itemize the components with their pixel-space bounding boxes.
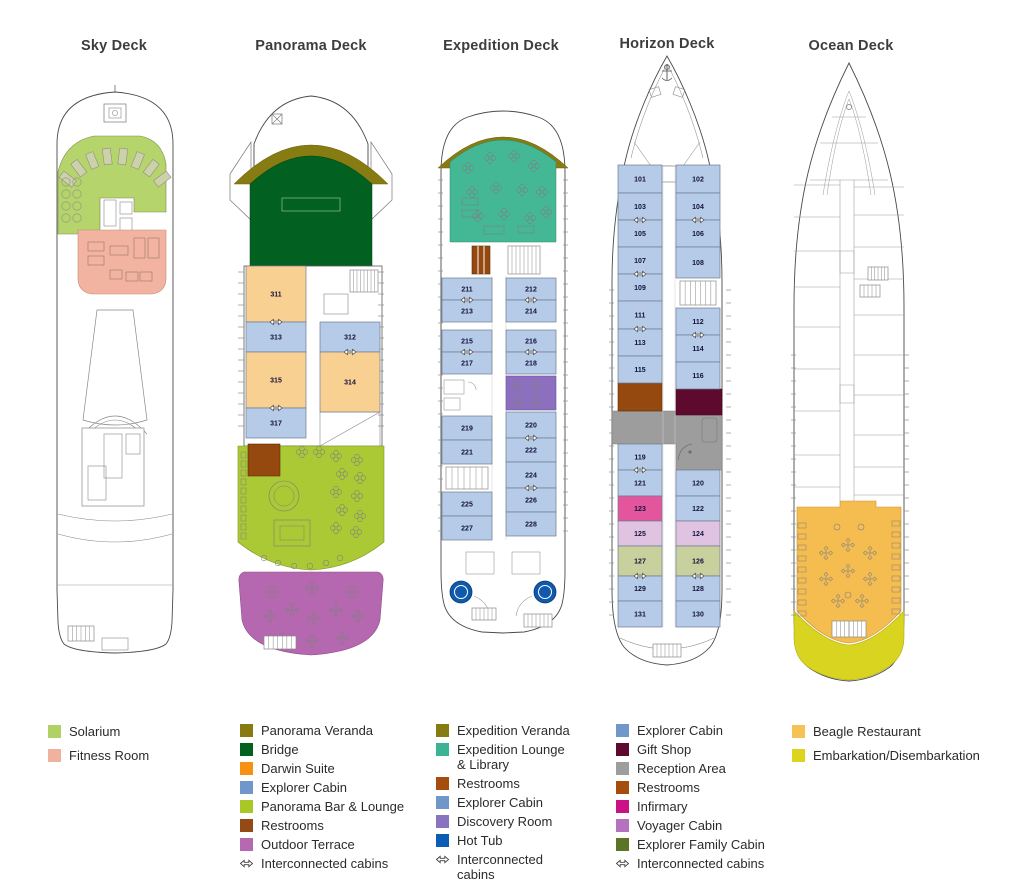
legend-panorama: Panorama VerandaBridgeDarwin SuiteExplor…	[240, 723, 404, 871]
deck-title-panorama: Panorama Deck	[255, 38, 366, 54]
legend-swatch	[240, 781, 253, 794]
cabin-number: 127	[634, 559, 646, 566]
legend-item: Interconnected cabins	[616, 856, 765, 871]
cabin-number: 122	[692, 506, 704, 513]
legend-swatch	[616, 743, 629, 756]
legend-swatch	[436, 743, 449, 756]
legend-swatch	[616, 838, 629, 851]
cabin-number: 113	[634, 340, 645, 347]
stairs-top	[508, 246, 540, 274]
legend-label: Beagle Restaurant	[813, 724, 921, 739]
legend-item: Embarkation/Disembarkation	[792, 748, 980, 763]
machinery	[104, 200, 116, 226]
legend-label: Expedition Veranda	[457, 723, 570, 738]
legend-item: Infirmary	[616, 799, 765, 814]
legend-label: Gift Shop	[637, 742, 691, 757]
cabin-number: 109	[634, 285, 646, 292]
legend-swatch	[240, 838, 253, 851]
legend-label: Discovery Room	[457, 814, 552, 829]
legend-item: Restrooms	[240, 818, 404, 833]
legend-swatch	[616, 724, 629, 737]
legend-swatch	[616, 819, 629, 832]
cabin-number: 111	[635, 313, 646, 320]
stern-platform	[102, 638, 128, 650]
cabin-number: 130	[692, 612, 704, 619]
cabin-number: 125	[634, 531, 646, 538]
legend-swatch	[616, 762, 629, 775]
cabin-number: 211	[461, 287, 472, 294]
legend-item: Beagle Restaurant	[792, 724, 980, 739]
cabin-number: 224	[525, 473, 537, 480]
legend-ocean: Beagle RestaurantEmbarkation/Disembarkat…	[792, 724, 980, 763]
stern-locker	[466, 552, 494, 574]
legend-label: Outdoor Terrace	[261, 837, 355, 852]
legend-label: Explorer Cabin	[637, 723, 723, 738]
legend-swatch	[240, 724, 253, 737]
legend-swatch	[436, 815, 449, 828]
legend-item: Fitness Room	[48, 748, 149, 763]
plan-detail	[102, 148, 112, 165]
panorama-deck-plan: 311313315317312314	[224, 80, 399, 675]
legend-item: Explorer Cabin	[436, 795, 575, 810]
cabin-number: 101	[634, 177, 646, 184]
legend-label: Restrooms	[261, 818, 324, 833]
legend-swatch	[616, 781, 629, 794]
cabin-number: 228	[525, 522, 537, 529]
stern-locker	[512, 552, 540, 574]
legend-label: Explorer Family Cabin	[637, 837, 765, 852]
legend-swatch	[792, 725, 805, 738]
hot-tub	[534, 581, 556, 603]
cabin-number: 104	[692, 204, 704, 211]
machinery	[120, 202, 132, 214]
legend-label: Interconnected cabins	[261, 856, 388, 871]
cabin-number: 108	[692, 260, 704, 267]
legend-label: Interconnected cabins	[637, 856, 764, 871]
plan-detail	[118, 148, 128, 165]
cabin-number: 219	[461, 426, 473, 433]
cabin-number: 313	[270, 335, 282, 342]
legend-item: Outdoor Terrace	[240, 837, 404, 852]
interconnect-arrows-icon	[616, 857, 629, 870]
hot-tub	[450, 581, 472, 603]
interconnect-arrows-icon	[436, 855, 449, 864]
legend-label: Expedition Lounge & Library	[457, 742, 575, 772]
legend-item: Explorer Family Cabin	[616, 837, 765, 852]
legend-swatch	[240, 743, 253, 756]
legend-item: Panorama Veranda	[240, 723, 404, 738]
legend-item: Interconnected cabins	[436, 852, 575, 882]
legend-label: Fitness Room	[69, 748, 149, 763]
legend-sky: SolariumFitness Room	[48, 724, 149, 763]
cabin-number: 105	[634, 231, 646, 238]
legend-label: Explorer Cabin	[457, 795, 543, 810]
gift-shop-area	[676, 389, 722, 415]
interconnect-arrows-icon	[240, 857, 253, 870]
lounger	[118, 148, 128, 165]
stair-post	[688, 450, 691, 453]
legend-swatch	[240, 800, 253, 813]
restrooms-area	[618, 383, 662, 411]
cabin-number: 124	[692, 531, 704, 538]
legend-item: Explorer Cabin	[240, 780, 404, 795]
legend-label: Restrooms	[637, 780, 700, 795]
cabin-number: 315	[270, 378, 282, 385]
legend-item: Reception Area	[616, 761, 765, 776]
legend-swatch	[48, 749, 61, 762]
cabin-number: 314	[344, 380, 356, 387]
legend-label: Restrooms	[457, 776, 520, 791]
expedition-lounge-area	[450, 140, 556, 242]
legend-swatch	[436, 724, 449, 737]
legend-label: Interconnected cabins	[457, 852, 575, 882]
legend-swatch	[48, 725, 61, 738]
legend-swatch	[436, 834, 449, 847]
legend-label: Solarium	[69, 724, 120, 739]
discovery-room-area	[506, 376, 556, 410]
cabin-number: 103	[634, 204, 646, 211]
legend-swatch	[436, 777, 449, 790]
cabin-number: 107	[634, 258, 646, 265]
legend-item: Gift Shop	[616, 742, 765, 757]
cabin-number: 114	[692, 346, 703, 353]
cabin-number: 222	[525, 448, 537, 455]
stairs	[680, 281, 716, 305]
lounger	[102, 148, 112, 165]
legend-label: Explorer Cabin	[261, 780, 347, 795]
legend-label: Embarkation/Disembarkation	[813, 748, 980, 763]
legend-label: Voyager Cabin	[637, 818, 722, 833]
cabin-number: 227	[461, 526, 473, 533]
cabin-number: 212	[525, 287, 537, 294]
legend-item: Expedition Lounge & Library	[436, 742, 575, 772]
cabin-number: 115	[634, 367, 645, 374]
legend-swatch	[240, 762, 253, 775]
cabin-number: 102	[692, 177, 704, 184]
legend-label: Panorama Veranda	[261, 723, 373, 738]
legend-label: Panorama Bar & Lounge	[261, 799, 404, 814]
cabin-number: 126	[692, 559, 704, 566]
legend-expedition: Expedition VerandaExpedition Lounge & Li…	[436, 723, 575, 882]
legend-item: Darwin Suite	[240, 761, 404, 776]
legend-swatch	[436, 796, 449, 809]
cabin-number: 121	[634, 481, 646, 488]
legend-horizon: Explorer CabinGift ShopReception AreaRes…	[616, 723, 765, 871]
restrooms-area	[472, 246, 490, 274]
deckhouse	[82, 428, 144, 506]
legend-label: Hot Tub	[457, 833, 503, 848]
cabin-number: 317	[270, 421, 282, 428]
legend-item: Restrooms	[436, 776, 575, 791]
cabin-number: 216	[525, 339, 537, 346]
interconnect-arrows-icon	[436, 853, 449, 866]
legend-item: Expedition Veranda	[436, 723, 575, 738]
deck-title-sky: Sky Deck	[81, 38, 147, 54]
horizon-deck-plan: 1011031051071091111131151191211231251271…	[600, 50, 740, 690]
legend-label: Darwin Suite	[261, 761, 335, 776]
legend-item: Explorer Cabin	[616, 723, 765, 738]
cabin-number: 220	[525, 423, 537, 430]
fitness-room-area	[78, 230, 166, 294]
cabin-number: 120	[692, 481, 704, 488]
cabin-number: 225	[461, 502, 473, 509]
deck-title-expedition: Expedition Deck	[443, 38, 559, 54]
cabin-number: 312	[344, 335, 356, 342]
legend-item: Solarium	[48, 724, 149, 739]
legend-label: Reception Area	[637, 761, 726, 776]
legend-swatch	[616, 800, 629, 813]
legend-item: Discovery Room	[436, 814, 575, 829]
cabin-number: 116	[692, 373, 703, 380]
interconnect-arrows-icon	[616, 859, 629, 868]
legend-label: Bridge	[261, 742, 299, 757]
stairs	[446, 467, 488, 489]
cabin-number: 214	[525, 309, 537, 316]
legend-swatch	[792, 749, 805, 762]
cabin-number: 112	[692, 319, 703, 326]
legend-item: Interconnected cabins	[240, 856, 404, 871]
mast-house	[104, 104, 126, 122]
interconnect-arrows-icon	[240, 859, 253, 868]
legend-item: Bridge	[240, 742, 404, 757]
stairs	[860, 285, 880, 297]
cabin-number: 218	[525, 361, 537, 368]
deck-title-ocean: Ocean Deck	[808, 38, 893, 54]
legend-swatch	[240, 819, 253, 832]
cabin-number: 131	[634, 612, 646, 619]
legend-item: Voyager Cabin	[616, 818, 765, 833]
legend-item: Hot Tub	[436, 833, 575, 848]
cabin-number: 128	[692, 586, 704, 593]
legend-label: Infirmary	[637, 799, 688, 814]
cabin-number: 221	[461, 450, 473, 457]
sky-deck-plan	[40, 82, 190, 682]
ocean-deck-plan	[780, 55, 930, 695]
cabin-number: 311	[270, 292, 281, 299]
cabin-number: 106	[692, 231, 704, 238]
cabin-number: 226	[525, 498, 537, 505]
cabin-number: 217	[461, 361, 473, 368]
cabin-number: 215	[461, 339, 473, 346]
deck-plans-page: Sky Deck Panorama Deck Expedition Deck H…	[0, 0, 1018, 889]
expedition-deck-plan: 2112132152172192212252272122142162182202…	[428, 100, 578, 660]
legend-item: Restrooms	[616, 780, 765, 795]
cabin-number: 213	[461, 309, 473, 316]
legend-item: Panorama Bar & Lounge	[240, 799, 404, 814]
cabin-number: 123	[634, 506, 646, 513]
cabin-number: 129	[634, 586, 646, 593]
restrooms-area	[248, 444, 280, 476]
cabin-number: 119	[634, 455, 645, 462]
